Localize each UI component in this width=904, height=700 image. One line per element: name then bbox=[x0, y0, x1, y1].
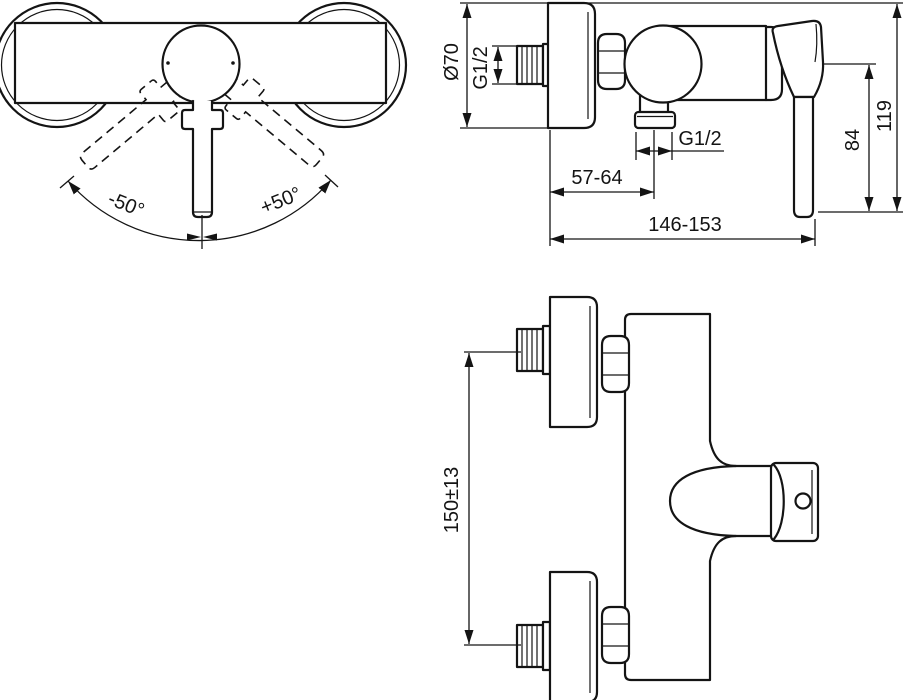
dim-label-swing-right: +50° bbox=[257, 183, 304, 219]
dim-label-total-depth: 146-153 bbox=[648, 214, 721, 236]
dim-label-rosette-diameter: Ø70 bbox=[441, 43, 463, 81]
lever-handle-front bbox=[182, 101, 223, 217]
dim-label-lever-drop: 84 bbox=[842, 129, 864, 151]
dim-label-outlet-thread: G1/2 bbox=[678, 128, 721, 150]
dim-label-total-height: 119 bbox=[874, 100, 896, 132]
valve-body-circle bbox=[625, 26, 702, 103]
lower-inlet-plan bbox=[517, 572, 629, 700]
lever-plan bbox=[771, 463, 818, 541]
dim-label-inlet-spacing: 150±13 bbox=[441, 467, 463, 534]
upper-inlet-plan bbox=[517, 297, 629, 427]
escutcheon-circle bbox=[163, 26, 240, 103]
pivot-dot-right bbox=[231, 61, 235, 65]
plan-view: 150±13 bbox=[441, 297, 818, 700]
front-view: -50° +50° bbox=[0, 3, 406, 249]
technical-drawing-canvas: -50° +50° bbox=[0, 0, 904, 700]
inlet-nipple-side bbox=[517, 44, 549, 86]
plan-dimensions: 150±13 bbox=[441, 352, 521, 645]
lever-screw-hole bbox=[796, 494, 811, 509]
lever-side bbox=[773, 21, 824, 217]
dim-label-inlet-thread: G1/2 bbox=[470, 46, 492, 89]
hex-nut-side bbox=[598, 34, 625, 89]
mixer-body-plan bbox=[625, 314, 773, 680]
pivot-dot-left bbox=[166, 61, 170, 65]
side-view: Ø70 G1/2 G1/2 57-64 146-153 84 bbox=[441, 3, 903, 246]
drawing-sheet: -50° +50° bbox=[0, 0, 904, 700]
outlet-ring-side bbox=[635, 112, 675, 128]
dim-label-wall-to-outlet: 57-64 bbox=[571, 167, 622, 189]
rosette-side bbox=[548, 3, 595, 128]
